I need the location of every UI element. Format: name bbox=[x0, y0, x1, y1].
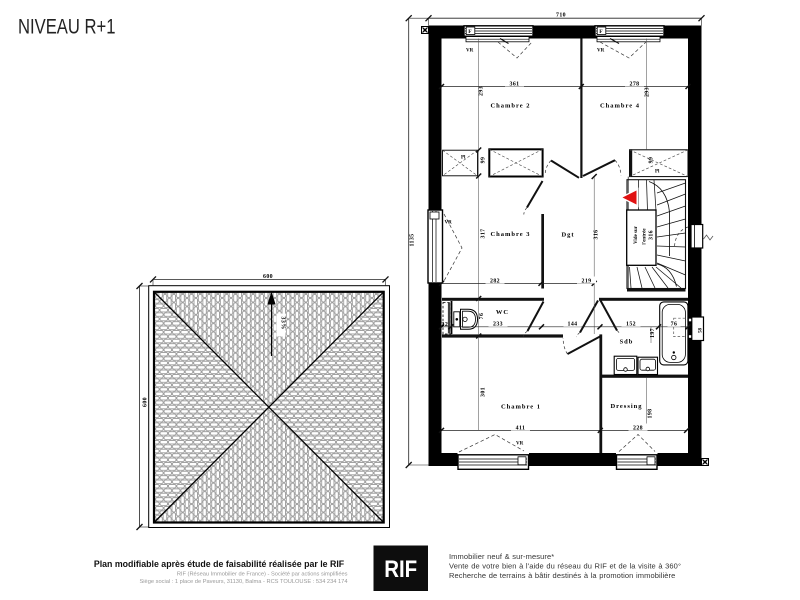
svg-text:F: F bbox=[599, 29, 603, 35]
svg-text:317: 317 bbox=[481, 228, 487, 238]
svg-text:293: 293 bbox=[479, 86, 485, 96]
svg-text:600: 600 bbox=[263, 274, 273, 280]
svg-text:219: 219 bbox=[581, 278, 591, 284]
svg-text:76: 76 bbox=[671, 322, 678, 328]
svg-text:Immobilier neuf & sur-mesure*: Immobilier neuf & sur-mesure* bbox=[449, 552, 554, 561]
svg-text:Dgt: Dgt bbox=[561, 232, 574, 239]
svg-text:710: 710 bbox=[556, 12, 566, 18]
svg-text:282: 282 bbox=[490, 278, 500, 284]
svg-text:Pl: Pl bbox=[461, 156, 466, 161]
svg-text:228: 228 bbox=[633, 425, 643, 431]
svg-text:316: 316 bbox=[594, 229, 600, 239]
svg-text:76: 76 bbox=[479, 313, 485, 320]
svg-text:1135: 1135 bbox=[410, 233, 416, 246]
svg-text:198: 198 bbox=[648, 408, 654, 418]
svg-text:233: 233 bbox=[493, 322, 503, 328]
svg-text:99: 99 bbox=[649, 157, 655, 164]
svg-text:600: 600 bbox=[143, 397, 149, 407]
svg-text:RIF (Réseau Immobilier de Fran: RIF (Réseau Immobilier de France) - Soci… bbox=[177, 572, 348, 578]
svg-text:22: 22 bbox=[442, 322, 449, 328]
svg-text:411: 411 bbox=[516, 425, 526, 431]
svg-text:Siège social : 1 place de Pave: Siège social : 1 place de Paveurs, 31130… bbox=[139, 579, 347, 585]
svg-text:Vente de votre bien à l'aide d: Vente de votre bien à l'aide du réseau d… bbox=[449, 562, 681, 571]
svg-text:RIF: RIF bbox=[384, 556, 417, 583]
svg-text:144: 144 bbox=[567, 322, 577, 328]
svg-text:NIVEAU R+1: NIVEAU R+1 bbox=[18, 15, 116, 39]
svg-text:278: 278 bbox=[629, 81, 639, 87]
svg-text:33%: 33% bbox=[280, 317, 286, 330]
svg-text:Chambre 1: Chambre 1 bbox=[501, 404, 541, 411]
svg-text:99: 99 bbox=[481, 157, 487, 164]
svg-text:Plan modifiable après étude de: Plan modifiable après étude de faisabili… bbox=[94, 559, 345, 569]
svg-text:Chambre 2: Chambre 2 bbox=[490, 103, 530, 110]
svg-text:Pl: Pl bbox=[655, 170, 660, 175]
svg-text:Chambre 4: Chambre 4 bbox=[600, 103, 640, 110]
svg-text:WC: WC bbox=[496, 309, 509, 316]
svg-text:361: 361 bbox=[509, 81, 519, 87]
svg-text:F: F bbox=[468, 29, 472, 35]
svg-text:316: 316 bbox=[649, 230, 655, 240]
svg-text:VR: VR bbox=[597, 49, 605, 54]
svg-text:152: 152 bbox=[626, 322, 636, 328]
svg-text:293: 293 bbox=[645, 87, 651, 97]
svg-text:58: 58 bbox=[699, 328, 704, 334]
svg-text:VR: VR bbox=[466, 49, 474, 54]
svg-text:VR: VR bbox=[516, 442, 524, 447]
svg-text:Recherche de terrains à bâtir: Recherche de terrains à bâtir destinés à… bbox=[449, 571, 675, 580]
svg-text:301: 301 bbox=[481, 387, 487, 397]
svg-text:Sdb: Sdb bbox=[620, 339, 634, 346]
svg-text:197: 197 bbox=[650, 328, 656, 338]
svg-text:Dressing: Dressing bbox=[610, 403, 642, 410]
svg-text:l'entrée: l'entrée bbox=[643, 228, 648, 245]
svg-text:Vide sur: Vide sur bbox=[634, 225, 639, 244]
svg-text:Chambre 3: Chambre 3 bbox=[490, 231, 530, 238]
svg-text:VR: VR bbox=[445, 221, 453, 226]
